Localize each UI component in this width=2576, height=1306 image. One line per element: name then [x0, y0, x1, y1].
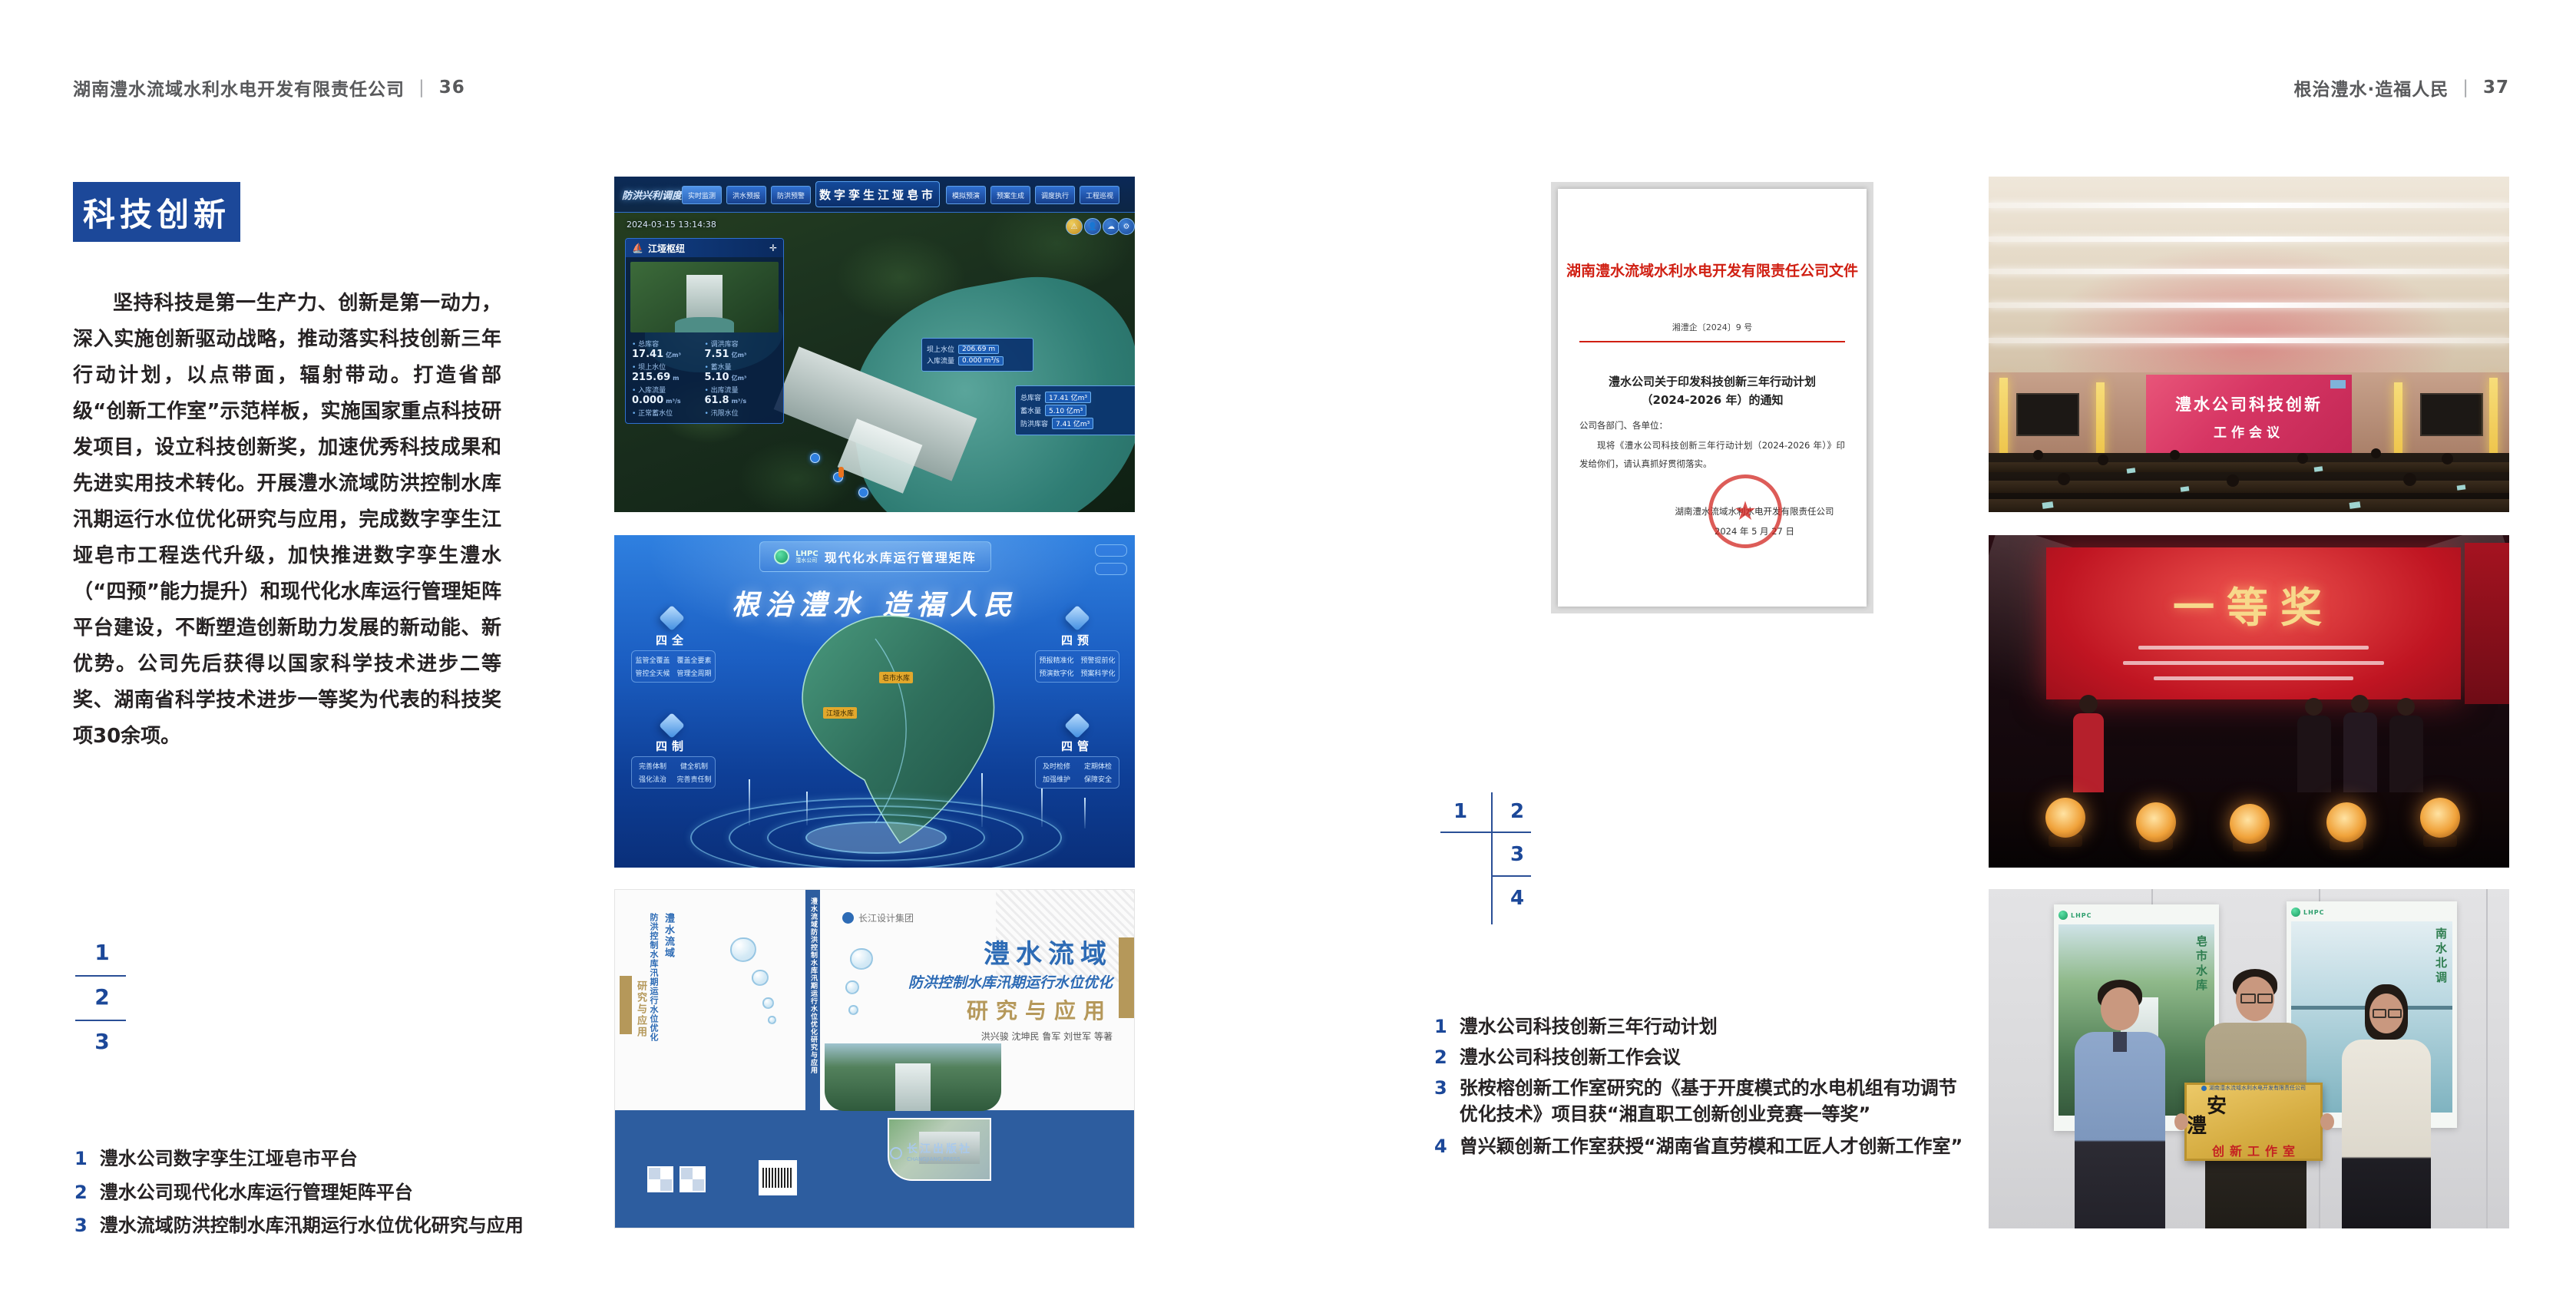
light-strip	[1989, 236, 2509, 242]
caption-row: 3 澧水流域防洪控制水库汛期运行水位优化研究与应用	[74, 1212, 551, 1238]
back-title-sub: 防洪控制水库汛期运行水位优化	[647, 913, 660, 1042]
poster-logo-text: LHPC	[2303, 909, 2325, 916]
publisher-name: 长江出版社	[907, 1143, 972, 1156]
page-number-left: 36	[439, 78, 465, 98]
plaque-name: 安 澧	[2187, 1096, 2320, 1136]
awardee-figure	[2343, 713, 2377, 792]
quadrant-item: 完善责任制	[676, 774, 711, 784]
light-strip	[1989, 338, 2509, 343]
right-page-header: 根治澧水·造福人民 | 37	[2293, 74, 2509, 101]
logo-subtext: 澧水公司	[795, 558, 818, 564]
document-salutation: 公司各部门、各单位：	[1579, 419, 1668, 431]
logo-text: LHPC	[795, 551, 818, 558]
slogan-text: 根治澧水·造福人民	[2293, 74, 2449, 101]
station-name: 江垭枢纽	[648, 242, 685, 255]
plaque-org-text: 湖南澧水流域水利水电开发有限责任公司	[2209, 1084, 2306, 1092]
attendee-head	[2371, 448, 2381, 458]
drum-light	[2420, 798, 2460, 838]
info-label: 防洪库容	[1020, 418, 1048, 428]
figure-meeting-photo: 澧水公司科技创新 工作会议	[1989, 177, 2509, 512]
publisher-row: 长江出版社 CHANGJIANG PRESS	[890, 1143, 972, 1162]
qr-code	[680, 1166, 706, 1192]
plaque-logo-icon	[2201, 1086, 2207, 1091]
valley-dam-photo	[825, 1043, 1001, 1111]
dam-wall	[686, 275, 722, 320]
caption-number: 1	[74, 1146, 88, 1172]
person-right-body	[2342, 1040, 2431, 1228]
quadrant-item: 预案科学化	[1080, 668, 1115, 678]
official-seal: ★	[1708, 474, 1782, 548]
matrix-title: 现代化水库运行管理矩阵	[825, 547, 977, 566]
dam-aerial-photo	[630, 262, 779, 332]
figure-management-matrix: LHPC澧水公司 现代化水库运行管理矩阵 根治澧水 造福人民 皂市水库 江垭水库…	[614, 535, 1135, 868]
quadrant-panel: 预报精准化 预警提前化 预演数字化 预案科学化	[1035, 650, 1119, 683]
figure-index-1: 1	[75, 940, 129, 965]
stat-label: 出库流量	[705, 385, 778, 395]
screen-title: 澧水公司科技创新	[2175, 392, 2323, 415]
toolbar-button[interactable]	[1095, 563, 1127, 575]
figure-index-2: 2	[75, 984, 129, 1010]
person-head	[2101, 987, 2139, 1030]
stat-label: 总库容	[632, 339, 705, 349]
caption-text: 澧水流域防洪控制水库汛期运行水位优化研究与应用	[100, 1212, 524, 1238]
water-droplet	[730, 937, 756, 962]
glasses-icon	[2373, 1009, 2386, 1018]
caption-number: 3	[74, 1212, 88, 1238]
brand-logo-icon	[842, 912, 854, 924]
qr-code	[647, 1166, 673, 1192]
figure-index-divider	[75, 975, 126, 977]
document-number: 湘澧企〔2024〕9 号	[1558, 321, 1867, 333]
station-panel-header: ⛵ 江垭枢纽 ✛	[626, 239, 783, 257]
water-droplet	[768, 1016, 776, 1024]
water-droplet	[848, 1005, 858, 1015]
spine-title: 澧水流域防洪控制水库汛期运行水位优化研究与应用	[809, 898, 818, 1074]
attendee-head	[2098, 455, 2108, 465]
water-level-tooltip: 坝上水位 206.69 m 入库流量 0.000 m³/s	[921, 338, 1033, 372]
pillar-lamp	[2394, 382, 2402, 458]
figure-index-vline	[1491, 792, 1493, 924]
figure-award-stage-photo: 一等奖	[1989, 535, 2509, 868]
attendee-head	[2058, 473, 2070, 485]
document-body: 现将《澧水公司科技创新三年行动计划（2024-2026 年）》印发给你们，请认真…	[1579, 436, 1845, 473]
caption-text: 澧水公司现代化水库运行管理矩阵平台	[100, 1179, 413, 1205]
host-figure	[2073, 713, 2104, 793]
figure-index-4: 4	[1494, 887, 1540, 910]
stat-value: 215.69	[632, 372, 670, 383]
tab-flood-forecast[interactable]: 洪水预报	[726, 186, 766, 204]
tooltip-label: 入库流量	[927, 355, 954, 365]
stat-label: 汛限水位	[705, 408, 778, 418]
settings-icon[interactable]: ⚙	[1118, 218, 1135, 235]
barcode-bars	[762, 1168, 793, 1188]
wall-seam	[2486, 889, 2488, 1228]
dashboard-mode-label: 防洪兴利调度	[622, 187, 682, 202]
quadrant-name: 四管	[1050, 738, 1104, 754]
attendee-head	[2033, 450, 2043, 460]
attendee-head	[2403, 473, 2416, 486]
light-strip	[1989, 303, 2509, 308]
user-icon[interactable]: 👤	[1084, 218, 1101, 235]
isbn-barcode	[759, 1160, 797, 1195]
quadrant-name: 四制	[645, 738, 699, 754]
left-page-header: 湖南澧水流域水利水电开发有限责任公司 | 36	[73, 74, 465, 101]
info-value: 5.10 亿m³	[1045, 405, 1086, 416]
back-title-tail: 研究与应用	[633, 980, 648, 1038]
innovation-studio-plaque: 湖南澧水流域水利水电开发有限责任公司 安 澧 创新工作室	[2184, 1083, 2323, 1161]
screen-text-line	[2154, 676, 2353, 680]
expand-icon[interactable]: ✛	[769, 243, 777, 253]
stat-label: 蓄水量	[705, 362, 778, 372]
lhpc-logo-icon	[2291, 908, 2300, 917]
quadrant-item: 保障安全	[1084, 774, 1112, 784]
document-page: 湖南澧水流域水利水电开发有限责任公司文件 湘澧企〔2024〕9 号 澧水公司关于…	[1558, 189, 1867, 607]
quadrant-item: 定期体检	[1084, 761, 1112, 771]
figure-index-2: 2	[1494, 800, 1540, 823]
pillar-lamp	[2096, 382, 2105, 458]
tab-realtime-monitor[interactable]: 实时监测	[682, 186, 722, 204]
stat-unit: 亿m³	[666, 352, 681, 359]
front-title-tail: 研究与应用	[907, 994, 1113, 1025]
dashboard-timestamp: 2024-03-15 13:14:38	[627, 220, 716, 230]
stat-label: 坝上水位	[632, 362, 705, 372]
caption-number: 3	[1434, 1075, 1447, 1127]
stat-label: 入库流量	[632, 385, 705, 395]
drum-light	[2045, 798, 2085, 838]
header-divider: |	[418, 78, 425, 98]
screen-text-line	[2123, 661, 2384, 665]
water-droplet	[762, 997, 774, 1009]
stat-value: 0.000	[632, 395, 663, 406]
stat-label: 正常蓄水位	[632, 408, 705, 418]
tab-flood-warning[interactable]: 防洪预警	[771, 186, 811, 204]
figure-official-document: 湖南澧水流域水利水电开发有限责任公司文件 湘澧企〔2024〕9 号 澧水公司关于…	[1551, 182, 1873, 613]
light-pin	[1041, 789, 1043, 827]
tab-plan-generate[interactable]: 预案生成	[990, 186, 1030, 204]
stat-value: 61.8	[705, 395, 729, 406]
map-marker-icon	[810, 453, 820, 463]
caption-number: 4	[1434, 1133, 1447, 1159]
lhpc-logo-icon	[774, 549, 789, 564]
light-pin	[806, 792, 808, 825]
attendee-head	[2442, 453, 2453, 465]
figure-plaque-photo: LHPC 皂市水库 LHPC 南水北调 湖南澧水流域水利水电开发有限责任公司 安…	[1989, 889, 2509, 1228]
awardee-figure	[2389, 716, 2423, 792]
side-display	[2420, 393, 2483, 436]
quadrant-panel: 监管全覆盖 覆盖全要素 管控全天候 管理全周期	[631, 650, 716, 683]
section-title: 科技创新	[73, 182, 240, 242]
pillar-lamp	[2489, 378, 2498, 458]
front-title-sub: 防洪控制水库汛期运行水位优化	[891, 971, 1113, 992]
hand	[2174, 1113, 2188, 1130]
map-label-jiangya: 江垭水库	[823, 707, 857, 719]
caption-row: 3 张桉榕创新工作室研究的《基于开度模式的水电机组有功调节优化技术》项目获“湘直…	[1434, 1075, 1972, 1127]
front-accent-bar	[1119, 937, 1135, 1018]
lhpc-logo-icon	[2058, 911, 2068, 920]
quadrant-item: 及时检修	[1043, 761, 1070, 771]
map-label-zaoshi: 皂市水库	[879, 672, 913, 683]
document-title-line1: 澧水公司关于印发科技创新三年行动计划	[1558, 373, 1867, 389]
table-row	[1989, 462, 2509, 472]
worker-figure	[838, 467, 844, 478]
table-row	[1989, 499, 2509, 512]
caption-row: 2 澧水公司现代化水库运行管理矩阵平台	[74, 1179, 535, 1205]
document-title-line2: （2024-2026 年）的通知	[1558, 392, 1867, 408]
water-droplet	[850, 948, 873, 970]
cloud-icon[interactable]: ☁	[1103, 218, 1119, 235]
light-pin	[749, 779, 750, 825]
attendee-head	[2170, 450, 2180, 460]
info-label: 蓄水量	[1020, 405, 1041, 415]
authors-line: 洪兴骏 沈坤民 鲁军 刘世军 等著	[907, 1030, 1113, 1043]
stat-unit: 亿m³	[732, 375, 747, 382]
stat-value: 7.51	[705, 349, 729, 360]
body-paragraph: 坚持科技是第一生产力、创新是第一动力，深入实施创新驱动战略，推动落实科技创新三年…	[73, 286, 501, 755]
quadrant-name: 四全	[645, 632, 699, 648]
quadrant-item: 预警提前化	[1080, 655, 1115, 665]
light-strip	[1989, 203, 2509, 208]
publisher-name-en: CHANGJIANG PRESS	[907, 1156, 972, 1162]
caption-number: 2	[74, 1179, 88, 1205]
drum-light	[2326, 802, 2366, 842]
page-number-right: 37	[2483, 78, 2509, 98]
map-marker-icon	[858, 488, 868, 498]
award-text: 一等奖	[2046, 574, 2461, 634]
figure-index-3: 3	[75, 1029, 129, 1054]
caption-row: 4 曾兴颖创新工作室获授“湖南省直劳模和工匠人才创新工作室”	[1434, 1133, 1972, 1159]
back-accent-bar	[620, 976, 632, 1034]
back-title-main: 澧水流域	[661, 913, 676, 959]
caption-text: 张桉榕创新工作室研究的《基于开度模式的水电机组有功调节优化技术》项目获“湘直职工…	[1460, 1075, 1972, 1127]
capacity-info-box: 总库容 17.41 亿m³ 蓄水量 5.10 亿m³ 防洪库容 7.41 亿m³	[1015, 385, 1135, 435]
alert-icon[interactable]: ⚠	[1066, 218, 1083, 235]
light-strip	[1989, 269, 2509, 274]
stat-value: 5.10	[705, 372, 729, 383]
quadrant-item: 管理全周期	[676, 668, 711, 678]
screen-subtitle: 工作会议	[2214, 422, 2284, 441]
polo-collar	[2113, 1032, 2128, 1052]
quadrant-item: 加强维护	[1043, 774, 1070, 784]
stilling-basin	[675, 317, 734, 332]
toolbar-button[interactable]	[1095, 544, 1127, 557]
dashboard-title: 数字孪生江垭皂市	[815, 181, 940, 207]
tooltip-value: 206.69 m	[958, 345, 999, 354]
quadrant-item: 预报精准化	[1039, 655, 1073, 665]
quadrant-item: 预演数字化	[1039, 668, 1073, 678]
water-droplet	[845, 980, 859, 994]
attendee-head	[2227, 474, 2239, 487]
figure-index-divider	[75, 1020, 126, 1021]
brand-row: 长江设计集团	[842, 911, 914, 924]
side-display	[2016, 393, 2079, 436]
ripple-core	[805, 822, 947, 854]
plaque-label: 创新工作室	[2207, 1141, 2300, 1159]
light-pin	[981, 773, 983, 827]
quadrant-item: 完善体制	[639, 761, 666, 771]
stat-unit: 亿m³	[732, 352, 747, 359]
station-panel: ⛵ 江垭枢纽 ✛ 总库容 17.41亿m³ 调洪库容 7.51亿m³ 坝上水位 …	[625, 238, 784, 424]
quadrant-item: 管控全天候	[635, 668, 670, 678]
caption-row: 2 澧水公司科技创新工作会议	[1434, 1044, 1964, 1070]
glasses-icon	[2240, 994, 2256, 1003]
brand-name: 长江设计集团	[858, 911, 914, 924]
light-pin	[1084, 798, 1086, 828]
tab-simulation[interactable]: 模拟预演	[946, 186, 986, 204]
stat-value: 17.41	[632, 349, 663, 360]
awardee-head	[2305, 698, 2323, 716]
stat-unit: m³/s	[732, 398, 747, 405]
poster-right-calligraphy: 南水北调	[2433, 927, 2449, 986]
poster-left-calligraphy: 皂市水库	[2194, 935, 2210, 994]
host-head	[2079, 695, 2098, 713]
dam-icon: ⛵	[632, 243, 643, 253]
projection-screen: 澧水公司科技创新 工作会议	[2146, 375, 2352, 458]
caption-number: 1	[1434, 1013, 1447, 1040]
info-value: 7.41 亿m³	[1052, 418, 1093, 429]
drum-light	[2230, 804, 2270, 844]
stat-unit: m³/s	[666, 398, 681, 405]
figure-index-divider	[1491, 875, 1531, 877]
red-rule	[1579, 341, 1845, 342]
screen-text-line	[2138, 646, 2369, 650]
quadrant-item: 强化法治	[639, 774, 666, 784]
quadrant-item: 覆盖全要素	[676, 655, 711, 665]
tooltip-label: 坝上水位	[927, 344, 954, 354]
station-stats-grid: 总库容 17.41亿m³ 调洪库容 7.51亿m³ 坝上水位 215.69m 蓄…	[626, 337, 783, 424]
matrix-header: LHPC澧水公司 现代化水库运行管理矩阵	[759, 541, 991, 572]
seal-star-icon: ★	[1734, 496, 1757, 527]
tab-dispatch-execute[interactable]: 调度执行	[1035, 186, 1075, 204]
glasses-icon	[2388, 1009, 2402, 1018]
header-divider: |	[2462, 78, 2469, 98]
info-value: 17.41 亿m³	[1045, 392, 1091, 403]
front-title-main: 澧水流域	[907, 933, 1113, 970]
caption-text: 澧水公司数字孪生江垭皂市平台	[100, 1146, 358, 1172]
quadrant-panel: 完善体制 健全机制 强化法治 完善责任制	[631, 756, 716, 789]
awardee-figure	[2297, 716, 2331, 792]
caption-number: 2	[1434, 1044, 1447, 1070]
led-screen: 一等奖	[2046, 547, 2461, 699]
attendee-head	[2297, 453, 2308, 464]
quadrant-name: 四预	[1050, 632, 1104, 648]
drum-light	[2136, 802, 2176, 842]
figure-book-cover: 澧水流域 防洪控制水库汛期运行水位优化 研究与应用 澧水流域防洪控制水库汛期运行…	[614, 889, 1135, 1228]
pillar-lamp	[1999, 378, 2008, 458]
tab-project-inspect[interactable]: 工程巡视	[1080, 186, 1119, 204]
figure-index-divider	[1440, 832, 1531, 833]
poster-logo-text: LHPC	[2071, 912, 2092, 919]
side-led-panel	[2465, 543, 2509, 704]
figure-index-3: 3	[1494, 843, 1540, 866]
person-left-body	[2075, 1032, 2165, 1228]
company-name: 湖南澧水流域水利水电开发有限责任公司	[73, 74, 405, 101]
stat-unit: m	[673, 375, 679, 382]
document-header: 湖南澧水流域水利水电开发有限责任公司文件	[1558, 260, 1867, 280]
figure-index-1: 1	[1437, 800, 1483, 823]
tooltip-value: 0.000 m³/s	[958, 356, 1004, 365]
caption-text: 澧水公司科技创新工作会议	[1460, 1044, 1681, 1070]
quadrant-panel: 及时检修 定期体检 加强维护 保障安全	[1035, 756, 1119, 789]
awardee-head	[2397, 698, 2415, 716]
quadrant-item: 监管全覆盖	[635, 655, 670, 665]
hand	[2320, 1113, 2334, 1130]
caption-text: 澧水公司科技创新三年行动计划	[1460, 1013, 1718, 1040]
figure-digital-twin-dashboard: 防洪兴利调度 实时监测 洪水预报 防洪预警 数字孪生江垭皂市 模拟预演 预案生成…	[614, 177, 1135, 512]
caption-row: 1 澧水公司数字孪生江垭皂市平台	[74, 1146, 535, 1172]
caption-row: 1 澧水公司科技创新三年行动计划	[1434, 1013, 1964, 1040]
slide-logo-chip	[2330, 380, 2346, 388]
caption-text: 曾兴颖创新工作室获授“湖南省直劳模和工匠人才创新工作室”	[1460, 1133, 1963, 1159]
dam-face	[895, 1063, 931, 1111]
glasses-icon	[2257, 994, 2273, 1003]
stat-label: 调洪库容	[705, 339, 778, 349]
awardee-head	[2351, 695, 2369, 713]
publisher-logo-icon	[890, 1147, 902, 1159]
info-label: 总库容	[1020, 392, 1041, 402]
water-droplet	[752, 970, 769, 986]
quadrant-item: 健全机制	[680, 761, 708, 771]
